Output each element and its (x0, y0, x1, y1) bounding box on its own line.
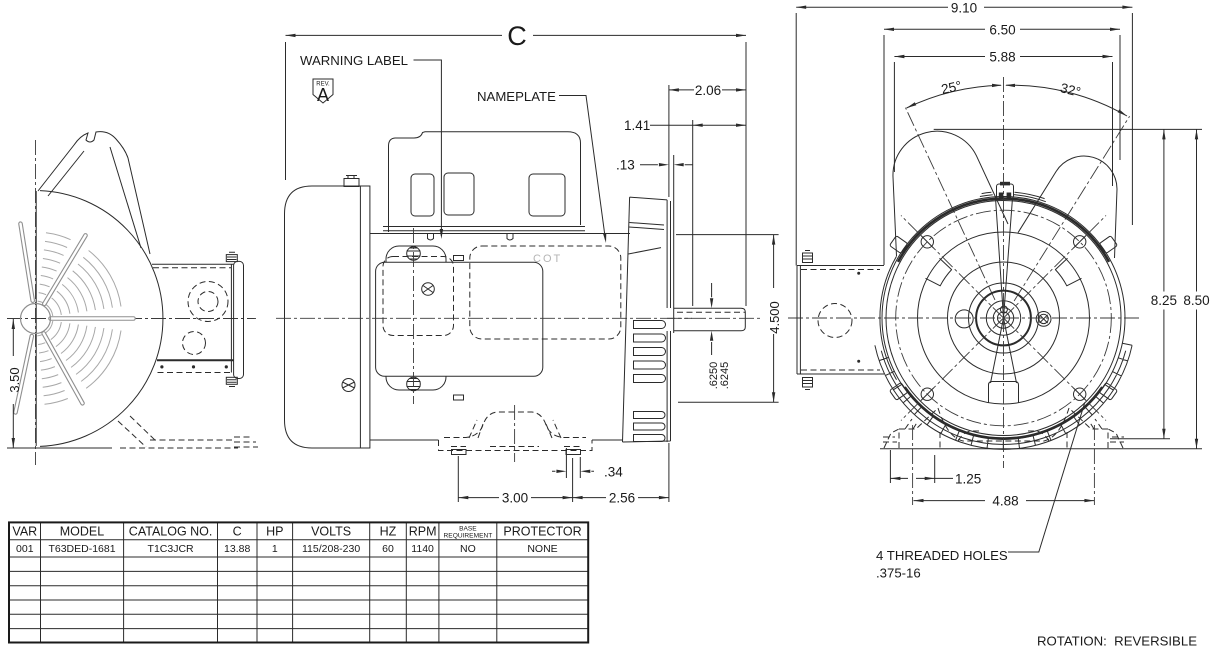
svg-text:1.25: 1.25 (955, 471, 981, 486)
svg-text:RPM: RPM (409, 525, 437, 539)
svg-text:3.00: 3.00 (502, 490, 528, 505)
svg-text:WARNING LABEL: WARNING LABEL (300, 53, 408, 68)
svg-text:1.41: 1.41 (624, 118, 650, 133)
svg-text:13.88: 13.88 (224, 543, 250, 555)
svg-text:2.06: 2.06 (695, 83, 721, 98)
svg-text:.13: .13 (616, 158, 635, 173)
svg-text:8.50: 8.50 (1183, 293, 1209, 308)
svg-text:.375-16: .375-16 (876, 566, 921, 581)
svg-text:CATALOG NO.: CATALOG NO. (129, 525, 213, 539)
svg-text:COT: COT (533, 253, 562, 265)
svg-text:9.10: 9.10 (951, 0, 977, 15)
svg-text:3.50: 3.50 (7, 367, 22, 392)
svg-text:4.88: 4.88 (992, 494, 1018, 509)
svg-text:NONE: NONE (527, 543, 557, 555)
svg-text:NAMEPLATE: NAMEPLATE (477, 89, 556, 104)
svg-text:VOLTS: VOLTS (311, 525, 351, 539)
svg-text:.34: .34 (604, 464, 623, 479)
svg-text:001: 001 (16, 543, 34, 555)
svg-text:2.56: 2.56 (609, 490, 635, 505)
svg-text:A: A (317, 85, 329, 105)
svg-text:T1C3JCR: T1C3JCR (148, 543, 195, 555)
svg-text:HZ: HZ (380, 525, 397, 539)
svg-text:VAR: VAR (12, 525, 37, 539)
svg-text:HP: HP (266, 525, 283, 539)
svg-text:BASE: BASE (459, 526, 477, 533)
svg-text:1: 1 (272, 543, 278, 555)
svg-text:MODEL: MODEL (60, 525, 105, 539)
svg-text:4.500: 4.500 (767, 301, 782, 334)
svg-text:C: C (507, 21, 527, 51)
svg-text:PROTECTOR: PROTECTOR (503, 525, 581, 539)
svg-text:ROTATION: REVERSIBLE: ROTATION: REVERSIBLE (1037, 634, 1197, 649)
svg-text:115/208-230: 115/208-230 (302, 543, 360, 555)
svg-text:.6245: .6245 (719, 362, 731, 390)
svg-text:5.88: 5.88 (989, 50, 1015, 65)
svg-text:1140: 1140 (411, 543, 434, 555)
svg-text:NO: NO (460, 543, 476, 555)
svg-text:C: C (233, 525, 242, 539)
svg-text:60: 60 (382, 543, 394, 555)
svg-text:REQUIREMENT: REQUIREMENT (444, 533, 493, 540)
svg-text:8.25: 8.25 (1151, 293, 1177, 308)
svg-text:T63DED-1681: T63DED-1681 (48, 543, 115, 555)
svg-text:6.50: 6.50 (989, 22, 1015, 37)
svg-text:4 THREADED HOLES: 4 THREADED HOLES (876, 548, 1008, 563)
